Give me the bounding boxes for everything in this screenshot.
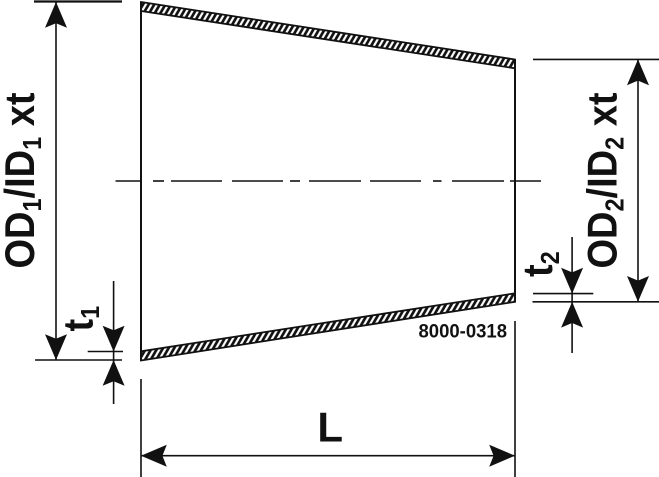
svg-text:OD1/ID1 xt: OD1/ID1 xt	[0, 92, 47, 268]
svg-text:8000-0318: 8000-0318	[419, 320, 508, 342]
svg-text:L: L	[317, 403, 343, 450]
svg-text:OD2/ID2 xt: OD2/ID2 xt	[580, 92, 630, 268]
